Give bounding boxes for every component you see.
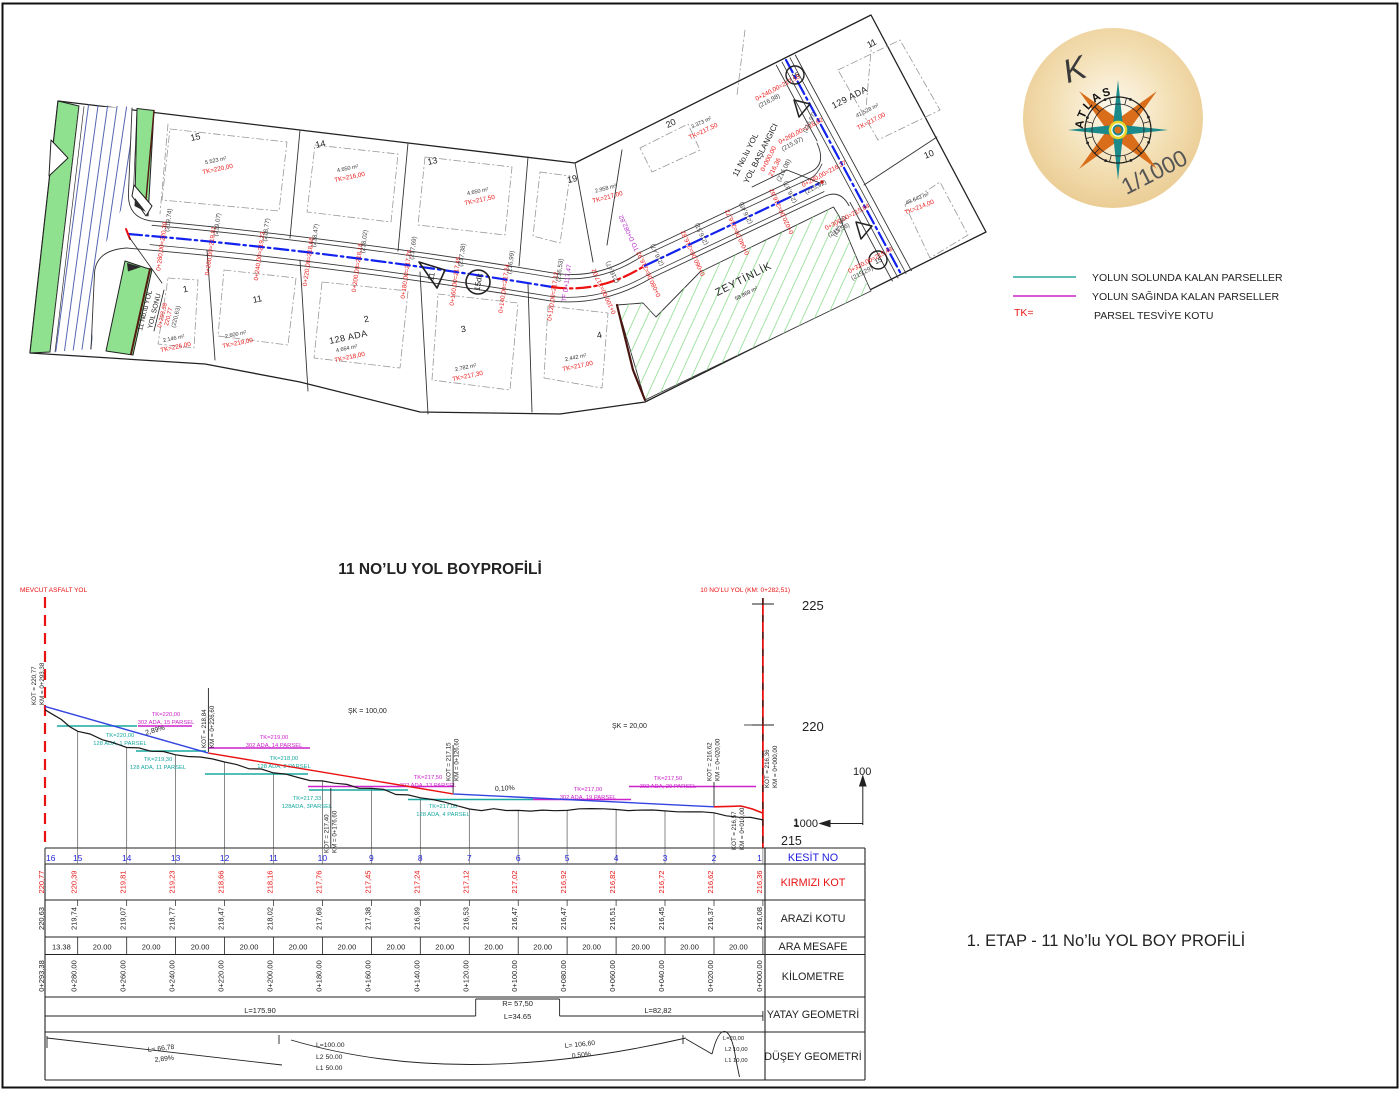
svg-text:219,07: 219,07: [119, 907, 128, 930]
svg-text:20.00: 20.00: [289, 943, 308, 952]
svg-text:8: 8: [418, 853, 423, 863]
svg-text:20.00: 20.00: [484, 943, 503, 952]
svg-text:302 ADA, 15 PARSEL: 302 ADA, 15 PARSEL: [138, 720, 195, 726]
svg-text:5: 5: [565, 853, 570, 863]
svg-text:215: 215: [781, 834, 802, 848]
svg-text:0+220.00: 0+220.00: [217, 960, 226, 992]
svg-text:100: 100: [853, 766, 871, 778]
svg-text:DÜŞEY GEOMETRİ: DÜŞEY GEOMETRİ: [764, 1050, 862, 1063]
svg-text:0+040.00: 0+040.00: [657, 960, 666, 992]
svg-text:1000: 1000: [794, 818, 818, 830]
svg-text:0,10%: 0,10%: [495, 785, 515, 793]
svg-text:216,37: 216,37: [706, 907, 715, 930]
svg-text:L1 50.00: L1 50.00: [316, 1065, 343, 1072]
svg-text:0+180.00: 0+180.00: [314, 960, 323, 992]
svg-text:YATAY GEOMETRİ: YATAY GEOMETRİ: [767, 1008, 860, 1021]
svg-text:220,63: 220,63: [37, 907, 46, 930]
svg-text:0+060.00: 0+060.00: [608, 960, 617, 992]
svg-text:217,12: 217,12: [461, 871, 470, 894]
svg-text:217,24: 217,24: [412, 871, 421, 894]
svg-text:0+000.00: 0+000.00: [755, 960, 764, 992]
svg-text:0+140.00: 0+140.00: [412, 960, 421, 992]
svg-text:0+080.00: 0+080.00: [559, 960, 568, 992]
svg-text:13: 13: [426, 155, 438, 167]
svg-text:216,99: 216,99: [412, 907, 421, 930]
svg-text:TK=220,00: TK=220,00: [152, 712, 181, 718]
svg-text:9: 9: [369, 853, 374, 863]
svg-text:KM = 0+010,00: KM = 0+010,00: [739, 807, 746, 850]
svg-text:KM = 0+126,60: KM = 0+126,60: [454, 738, 461, 781]
svg-text:L1 10,00: L1 10,00: [725, 1058, 748, 1064]
svg-text:11: 11: [269, 853, 278, 863]
svg-text:216,53: 216,53: [461, 907, 470, 930]
svg-text:128ADA, 3PARSEL: 128ADA, 3PARSEL: [282, 804, 333, 810]
svg-text:218,77: 218,77: [168, 907, 177, 930]
svg-text:0+280.00: 0+280.00: [70, 960, 79, 992]
svg-text:YOLUN SAĞINDA KALAN PARSELLER: YOLUN SAĞINDA KALAN PARSELLER: [1092, 290, 1280, 303]
svg-text:20.00: 20.00: [435, 943, 454, 952]
svg-text:128 ADA, 4 PARSEL: 128 ADA, 4 PARSEL: [416, 812, 470, 818]
svg-text:TK=217,00: TK=217,00: [574, 787, 603, 793]
svg-text:217,02: 217,02: [510, 871, 519, 894]
svg-text:3: 3: [663, 853, 668, 863]
svg-text:216,36: 216,36: [755, 871, 764, 894]
svg-text:ŞK = 100,00: ŞK = 100,00: [348, 708, 387, 715]
svg-text:220: 220: [802, 719, 824, 734]
svg-text:15: 15: [189, 131, 201, 143]
svg-text:L2 50.00: L2 50.00: [316, 1054, 343, 1061]
svg-text:13.38: 13.38: [52, 943, 71, 952]
svg-text:TK=218,00: TK=218,00: [270, 756, 299, 762]
svg-text:1: 1: [757, 853, 762, 863]
svg-text:KOT = 216,57: KOT = 216,57: [731, 811, 738, 850]
svg-text:KM = 0+176,60: KM = 0+176,60: [331, 810, 338, 853]
svg-text:216,82: 216,82: [608, 871, 617, 894]
svg-text:TK=220,00: TK=220,00: [106, 733, 135, 739]
svg-text:20.00: 20.00: [533, 943, 552, 952]
svg-text:217,76: 217,76: [314, 871, 323, 894]
svg-text:10 NO’LU YOL (KM: 0+282,51): 10 NO’LU YOL (KM: 0+282,51): [700, 587, 790, 594]
svg-text:KOT = 218,84: KOT = 218,84: [201, 709, 208, 748]
svg-text:ŞK = 20,00: ŞK = 20,00: [612, 723, 647, 730]
svg-text:KESİT NO: KESİT NO: [788, 851, 838, 864]
svg-text:20.00: 20.00: [93, 943, 112, 952]
svg-text:20.00: 20.00: [582, 943, 601, 952]
svg-text:0+160.00: 0+160.00: [363, 960, 372, 992]
svg-text:217,69: 217,69: [314, 907, 323, 930]
svg-text:14: 14: [122, 853, 132, 863]
svg-text:KM = 0+226,60: KM = 0+226,60: [209, 705, 216, 748]
svg-text:0+293.38: 0+293.38: [37, 960, 46, 992]
svg-text:20.00: 20.00: [680, 943, 699, 952]
svg-text:219,74: 219,74: [70, 907, 79, 930]
svg-text:216,51: 216,51: [608, 907, 617, 930]
svg-text:11 NO’LU YOL BOYPROFİLİ: 11 NO’LU YOL BOYPROFİLİ: [338, 561, 542, 578]
svg-text:PARSEL TESVİYE KOTU: PARSEL TESVİYE KOTU: [1094, 309, 1213, 322]
svg-text:216,92: 216,92: [559, 871, 568, 894]
svg-text:KOT = 217,40: KOT = 217,40: [323, 814, 330, 853]
svg-text:14: 14: [314, 138, 326, 150]
svg-text:R= 57,50: R= 57,50: [502, 999, 533, 1008]
svg-text:TK=217,33: TK=217,33: [293, 796, 322, 802]
svg-text:218,16: 218,16: [266, 871, 275, 894]
svg-text:6: 6: [516, 853, 521, 863]
svg-text:L=34.65: L=34.65: [504, 1012, 531, 1021]
svg-text:302 ADA, 20 PARSEL: 302 ADA, 20 PARSEL: [640, 784, 697, 790]
svg-text:TK=219,30: TK=219,30: [144, 757, 173, 763]
svg-text:ARA MESAFE: ARA MESAFE: [779, 941, 848, 953]
svg-text:KİLOMETRE: KİLOMETRE: [782, 970, 844, 983]
svg-text:128 ADA, 11 PARSEL: 128 ADA, 11 PARSEL: [130, 765, 187, 771]
svg-text:L=175.90: L=175.90: [244, 1006, 276, 1015]
svg-text:219,23: 219,23: [168, 871, 177, 894]
svg-text:ARAZİ KOTU: ARAZİ KOTU: [781, 912, 846, 925]
svg-text:218,66: 218,66: [217, 871, 226, 894]
svg-text:216,72: 216,72: [657, 871, 666, 894]
svg-text:216,62: 216,62: [706, 871, 715, 894]
svg-text:KOT = 217,15: KOT = 217,15: [446, 742, 453, 781]
svg-text:0+260.00: 0+260.00: [119, 960, 128, 992]
svg-text:12: 12: [220, 853, 230, 863]
svg-text:TK=217,50: TK=217,50: [414, 775, 443, 781]
svg-text:TK=217,50: TK=217,50: [654, 776, 683, 782]
svg-text:0+120.00: 0+120.00: [461, 960, 470, 992]
svg-text:0+100.00: 0+100.00: [510, 960, 519, 992]
svg-text:220,39: 220,39: [70, 871, 79, 894]
svg-text:KM = 0+020,00: KM = 0+020,00: [715, 738, 722, 781]
svg-text:20.00: 20.00: [142, 943, 161, 952]
svg-text:KM = 0+293,38: KM = 0+293,38: [39, 662, 46, 705]
svg-text:KOT = 220,77: KOT = 220,77: [31, 666, 38, 705]
svg-text:216,45: 216,45: [657, 907, 666, 930]
svg-text:TK=219,00: TK=219,00: [260, 735, 289, 741]
svg-text:216,08: 216,08: [755, 907, 764, 930]
svg-text:13: 13: [171, 853, 181, 863]
svg-text:1. ETAP - 11 No’lu YOL BOY PRO: 1. ETAP - 11 No’lu YOL BOY PROFİLİ: [967, 931, 1245, 950]
svg-text:20.00: 20.00: [387, 943, 406, 952]
svg-text:KOT = 216,62: KOT = 216,62: [707, 742, 714, 781]
svg-text:7: 7: [467, 853, 472, 863]
svg-text:TK=: TK=: [1014, 307, 1034, 319]
svg-text:216,47: 216,47: [510, 907, 519, 930]
svg-text:KOT = 216,36: KOT = 216,36: [764, 749, 771, 788]
svg-text:0+240.00: 0+240.00: [168, 960, 177, 992]
svg-text:L=20,00: L=20,00: [723, 1036, 744, 1042]
svg-text:KM = 0+000,00: KM = 0+000,00: [772, 745, 779, 788]
svg-text:216,47: 216,47: [559, 907, 568, 930]
svg-text:KIRMIZI KOT: KIRMIZI KOT: [781, 877, 846, 889]
svg-text:219,81: 219,81: [119, 871, 128, 894]
svg-text:L=100.00: L=100.00: [316, 1042, 345, 1049]
svg-text:0+020.00: 0+020.00: [706, 960, 715, 992]
svg-text:MEVCUT ASFALT YOL: MEVCUT ASFALT YOL: [20, 587, 87, 594]
svg-text:10: 10: [318, 853, 328, 863]
svg-text:L2 10,00: L2 10,00: [725, 1047, 748, 1053]
svg-text:0+200.00: 0+200.00: [266, 960, 275, 992]
svg-text:20.00: 20.00: [338, 943, 357, 952]
svg-text:15: 15: [73, 853, 83, 863]
svg-text:128 ADA, 1 PARSEL: 128 ADA, 1 PARSEL: [93, 741, 147, 747]
svg-text:4: 4: [614, 853, 619, 863]
svg-text:220,77: 220,77: [37, 871, 46, 894]
svg-text:302 ADA, 14 PARSEL: 302 ADA, 14 PARSEL: [246, 743, 303, 749]
svg-text:16: 16: [46, 853, 56, 863]
svg-text:20.00: 20.00: [729, 943, 748, 952]
svg-text:217,45: 217,45: [363, 871, 372, 894]
svg-text:225: 225: [802, 598, 824, 613]
svg-text:217,38: 217,38: [363, 907, 372, 930]
svg-text:20.00: 20.00: [631, 943, 650, 952]
svg-text:YOLUN SOLUNDA KALAN PARSELLER: YOLUN SOLUNDA KALAN PARSELLER: [1092, 272, 1283, 284]
svg-text:2: 2: [712, 853, 717, 863]
svg-text:L=82,82: L=82,82: [644, 1006, 671, 1015]
svg-text:20.00: 20.00: [191, 943, 210, 952]
svg-text:218,47: 218,47: [217, 907, 226, 930]
svg-text:20.00: 20.00: [240, 943, 259, 952]
svg-text:218,02: 218,02: [266, 907, 275, 930]
